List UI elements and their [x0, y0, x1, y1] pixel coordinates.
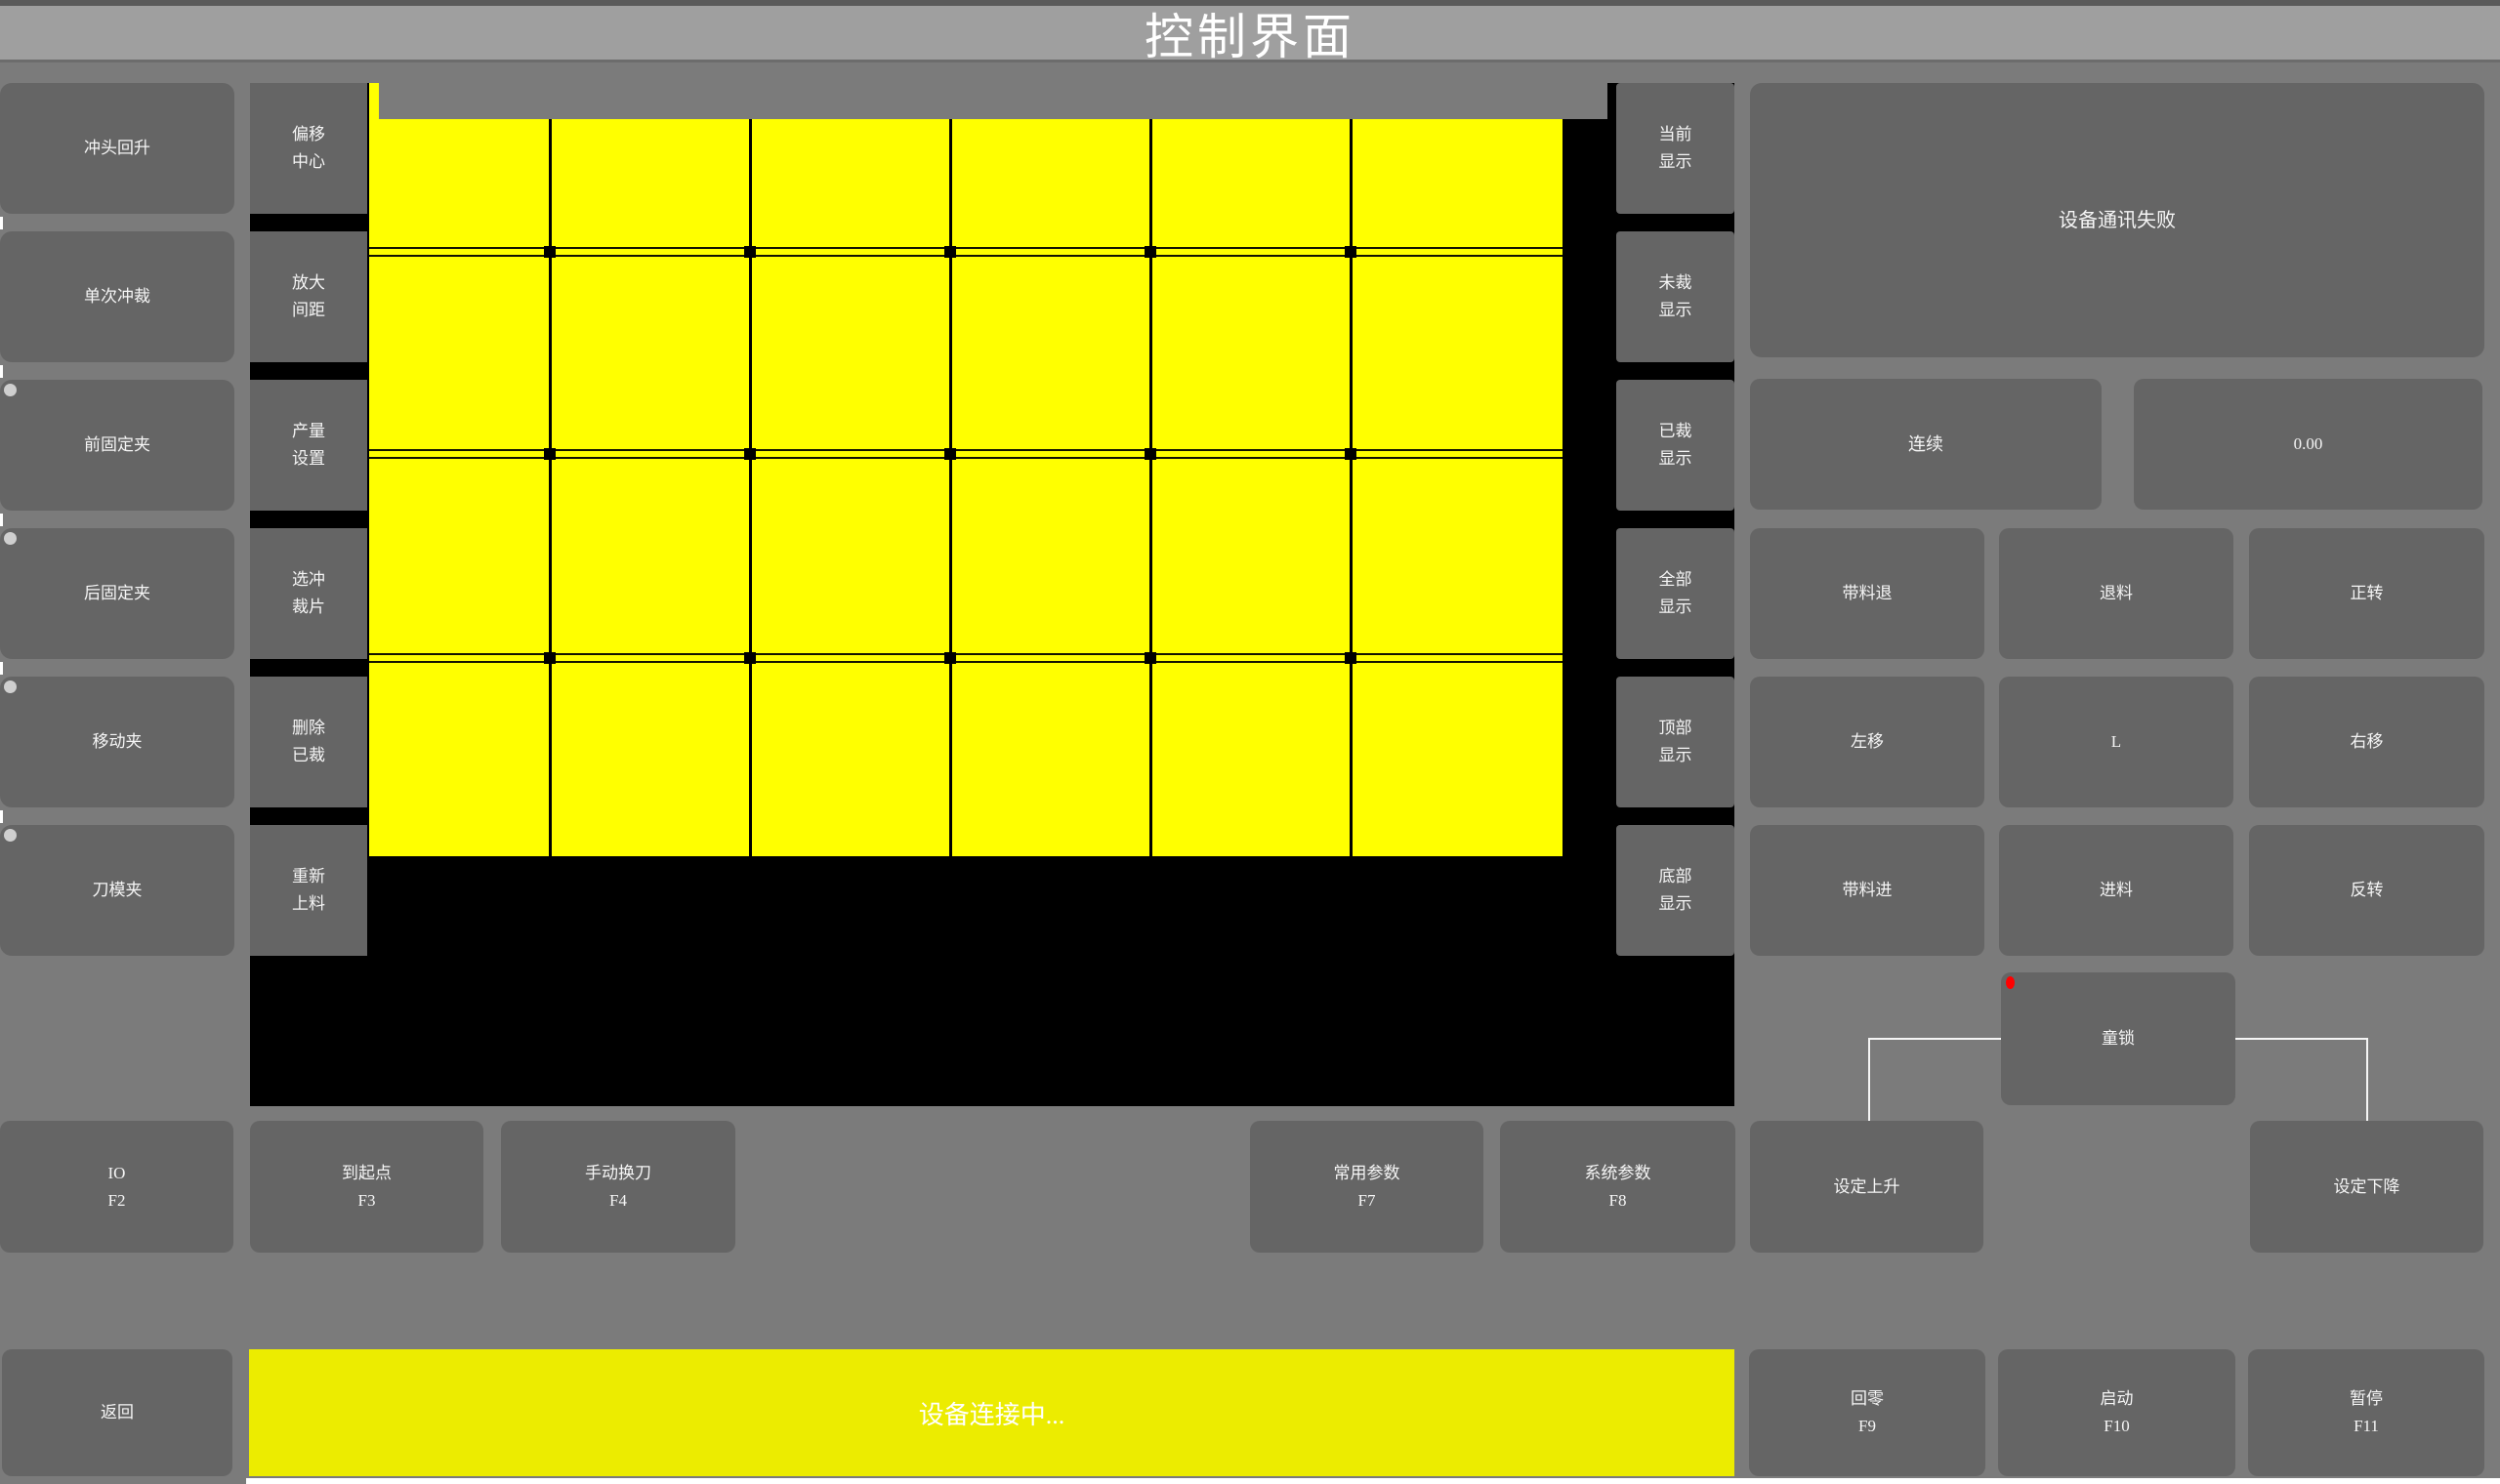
bracket-line — [2366, 1038, 2368, 1121]
button-front-clamp[interactable]: 前固定夹 — [0, 380, 234, 511]
button-moving-clamp[interactable]: 移动夹 — [0, 677, 234, 807]
button-label: 顶部 显示 — [1659, 715, 1692, 769]
control-screen: 控制界面 冲头回升 单次冲裁 前固定夹 后固定夹 移动夹 刀模夹 偏移 中心 放… — [0, 0, 2500, 1484]
button-label: 当前 显示 — [1659, 121, 1692, 176]
button-home-f9[interactable]: 回零 F9 — [1749, 1349, 1985, 1476]
cut-line-junction — [944, 448, 956, 460]
button-label: 冲头回升 — [84, 135, 150, 162]
cut-line-vertical — [949, 119, 952, 247]
button-label: 偏移 中心 — [292, 121, 325, 176]
title-bar: 控制界面 — [0, 0, 2500, 62]
edge-tick — [0, 662, 3, 675]
cut-line-vertical — [1149, 255, 1152, 449]
button-label: IO F2 — [108, 1160, 126, 1215]
device-status-message: 设备通讯失败 — [2059, 207, 2176, 234]
button-label: 重新 上料 — [292, 863, 325, 918]
button-rear-clamp[interactable]: 后固定夹 — [0, 528, 234, 659]
bracket-line — [2235, 1038, 2368, 1040]
cut-line-junction — [1345, 246, 1356, 258]
status-indicator-dot — [4, 829, 17, 842]
cut-line-junction — [744, 246, 756, 258]
button-punch-return[interactable]: 冲头回升 — [0, 83, 234, 214]
status-indicator-dot — [4, 532, 17, 545]
edge-tick — [0, 365, 3, 378]
connection-status-text: 设备连接中... — [919, 1395, 1065, 1431]
edge-tick — [0, 810, 3, 823]
button-manual-tool-change-f4[interactable]: 手动换刀 F4 — [501, 1121, 735, 1253]
button-label: 前固定夹 — [84, 432, 150, 459]
cut-line-junction — [944, 652, 956, 664]
button-select-piece[interactable]: 选冲 裁片 — [250, 528, 367, 659]
button-label: 右移 — [2351, 728, 2384, 756]
button-label: 设定下降 — [2334, 1174, 2400, 1201]
preview-top-band — [379, 83, 1607, 119]
cut-line-vertical — [549, 661, 552, 856]
cut-line-junction — [544, 652, 556, 664]
cut-line-vertical — [949, 661, 952, 856]
button-system-params-f8[interactable]: 系统参数 F8 — [1500, 1121, 1735, 1253]
button-label: 带料进 — [1843, 877, 1893, 904]
cut-line-junction — [1145, 652, 1156, 664]
button-back[interactable]: 返回 — [2, 1349, 232, 1476]
button-label: 后固定夹 — [84, 580, 150, 607]
button-io-f2[interactable]: IO F2 — [0, 1121, 233, 1253]
cut-line-vertical — [749, 661, 752, 856]
page-title: 控制界面 — [1145, 0, 1355, 68]
cut-line-vertical — [749, 457, 752, 653]
cut-line-junction — [1345, 652, 1356, 664]
button-common-params-f7[interactable]: 常用参数 F7 — [1250, 1121, 1483, 1253]
button-set-fall[interactable]: 设定下降 — [2250, 1121, 2483, 1253]
cut-line-vertical — [949, 255, 952, 449]
cut-line-junction — [944, 246, 956, 258]
cut-line-vertical — [1350, 457, 1353, 653]
cut-line-vertical — [1149, 661, 1152, 856]
cut-line-vertical — [549, 119, 552, 247]
button-label: 删除 已裁 — [292, 715, 325, 769]
button-feed[interactable]: 进料 — [1999, 825, 2233, 956]
button-label: 已裁 显示 — [1659, 418, 1692, 473]
button-strip-forward[interactable]: 带料进 — [1750, 825, 1984, 956]
button-label: 返回 — [101, 1399, 134, 1426]
button-offset-center[interactable]: 偏移 中心 — [250, 83, 367, 214]
button-label: 退料 — [2100, 580, 2133, 607]
button-label: 设定上升 — [1834, 1174, 1900, 1201]
button-label: 童锁 — [2102, 1025, 2135, 1052]
button-label: 移动夹 — [93, 728, 143, 756]
button-label: 带料退 — [1843, 580, 1893, 607]
button-reload-material[interactable]: 重新 上料 — [250, 825, 367, 956]
bracket-line — [1868, 1038, 2001, 1040]
cut-line-junction — [744, 652, 756, 664]
connection-status-bar: 设备连接中... — [249, 1349, 1734, 1476]
edge-tick — [0, 514, 3, 526]
button-label: 到起点 F3 — [342, 1160, 392, 1215]
cut-line-vertical — [1149, 457, 1152, 653]
red-indicator-dot — [2006, 976, 2015, 989]
button-label: 左移 — [1851, 728, 1884, 756]
cut-line-vertical — [749, 119, 752, 247]
button-start-f10[interactable]: 启动 F10 — [1998, 1349, 2235, 1476]
button-label: 刀模夹 — [93, 877, 143, 904]
button-enlarge-gap[interactable]: 放大 间距 — [250, 231, 367, 362]
button-label: 暂停 F11 — [2350, 1385, 2383, 1440]
button-label: 单次冲裁 — [84, 283, 150, 310]
button-unload[interactable]: 退料 — [1999, 528, 2233, 659]
button-delete-cut[interactable]: 删除 已裁 — [250, 677, 367, 807]
cut-line-junction — [544, 246, 556, 258]
cut-line-junction — [1145, 448, 1156, 460]
button-label: 选冲 裁片 — [292, 566, 325, 621]
button-reverse-rotate[interactable]: 反转 — [2249, 825, 2484, 956]
button-show-bottom[interactable]: 底部 显示 — [1616, 825, 1734, 956]
button-show-cut[interactable]: 已裁 显示 — [1616, 380, 1734, 511]
material-sheet[interactable] — [369, 119, 1562, 856]
button-label: 回零 F9 — [1851, 1385, 1884, 1440]
button-label: 进料 — [2100, 877, 2133, 904]
button-strip-back[interactable]: 带料退 — [1750, 528, 1984, 659]
button-label: 启动 F10 — [2101, 1385, 2134, 1440]
cut-line-vertical — [749, 255, 752, 449]
cut-line-vertical — [549, 255, 552, 449]
cut-line-junction — [1345, 448, 1356, 460]
cut-line-vertical — [1350, 255, 1353, 449]
cut-line-junction — [544, 448, 556, 460]
button-to-origin-f3[interactable]: 到起点 F3 — [250, 1121, 483, 1253]
edge-tick — [0, 217, 3, 229]
button-pause-f11[interactable]: 暂停 F11 — [2248, 1349, 2484, 1476]
button-show-all[interactable]: 全部 显示 — [1616, 528, 1734, 659]
button-l[interactable]: L — [1999, 677, 2233, 807]
button-move-right[interactable]: 右移 — [2249, 677, 2484, 807]
cut-line-junction — [1145, 246, 1156, 258]
cut-line-vertical — [949, 457, 952, 653]
button-show-current[interactable]: 当前 显示 — [1616, 83, 1734, 214]
button-show-top[interactable]: 顶部 显示 — [1616, 677, 1734, 807]
button-label: 反转 — [2351, 877, 2384, 904]
button-single-punch[interactable]: 单次冲裁 — [0, 231, 234, 362]
bracket-line — [1868, 1038, 1870, 1121]
button-label: 手动换刀 F4 — [585, 1160, 651, 1215]
mode-button-continuous[interactable]: 连续 — [1750, 379, 2102, 510]
button-die-clamp[interactable]: 刀模夹 — [0, 825, 234, 956]
button-label: 连续 — [1908, 431, 1943, 458]
value-readout: 0.00 — [2294, 431, 2323, 458]
button-label: 放大 间距 — [292, 269, 325, 324]
cut-line-vertical — [1149, 119, 1152, 247]
button-label: 全部 显示 — [1659, 566, 1692, 621]
button-label: 正转 — [2351, 580, 2384, 607]
cut-line-vertical — [549, 457, 552, 653]
button-label: 系统参数 F8 — [1585, 1160, 1651, 1215]
button-label: 常用参数 F7 — [1334, 1160, 1400, 1215]
bottom-white-strip — [246, 1478, 2500, 1484]
cut-preview-panel — [250, 83, 1734, 1106]
status-indicator-dot — [4, 384, 17, 396]
button-move-left[interactable]: 左移 — [1750, 677, 1984, 807]
device-status-panel: 设备通讯失败 — [1750, 83, 2484, 357]
button-label: 未裁 显示 — [1659, 269, 1692, 324]
button-label: L — [2111, 728, 2121, 756]
status-indicator-dot — [4, 680, 17, 693]
button-child-lock[interactable]: 童锁 — [2001, 972, 2235, 1105]
button-label: 底部 显示 — [1659, 863, 1692, 918]
button-yield-settings[interactable]: 产量 设置 — [250, 380, 367, 511]
cut-line-junction — [744, 448, 756, 460]
button-show-uncut[interactable]: 未裁 显示 — [1616, 231, 1734, 362]
cut-line-vertical — [1350, 661, 1353, 856]
button-forward-rotate[interactable]: 正转 — [2249, 528, 2484, 659]
button-label: 产量 设置 — [292, 418, 325, 473]
value-display-box: 0.00 — [2134, 379, 2482, 510]
button-set-rise[interactable]: 设定上升 — [1750, 1121, 1983, 1253]
cut-line-vertical — [1350, 119, 1353, 247]
